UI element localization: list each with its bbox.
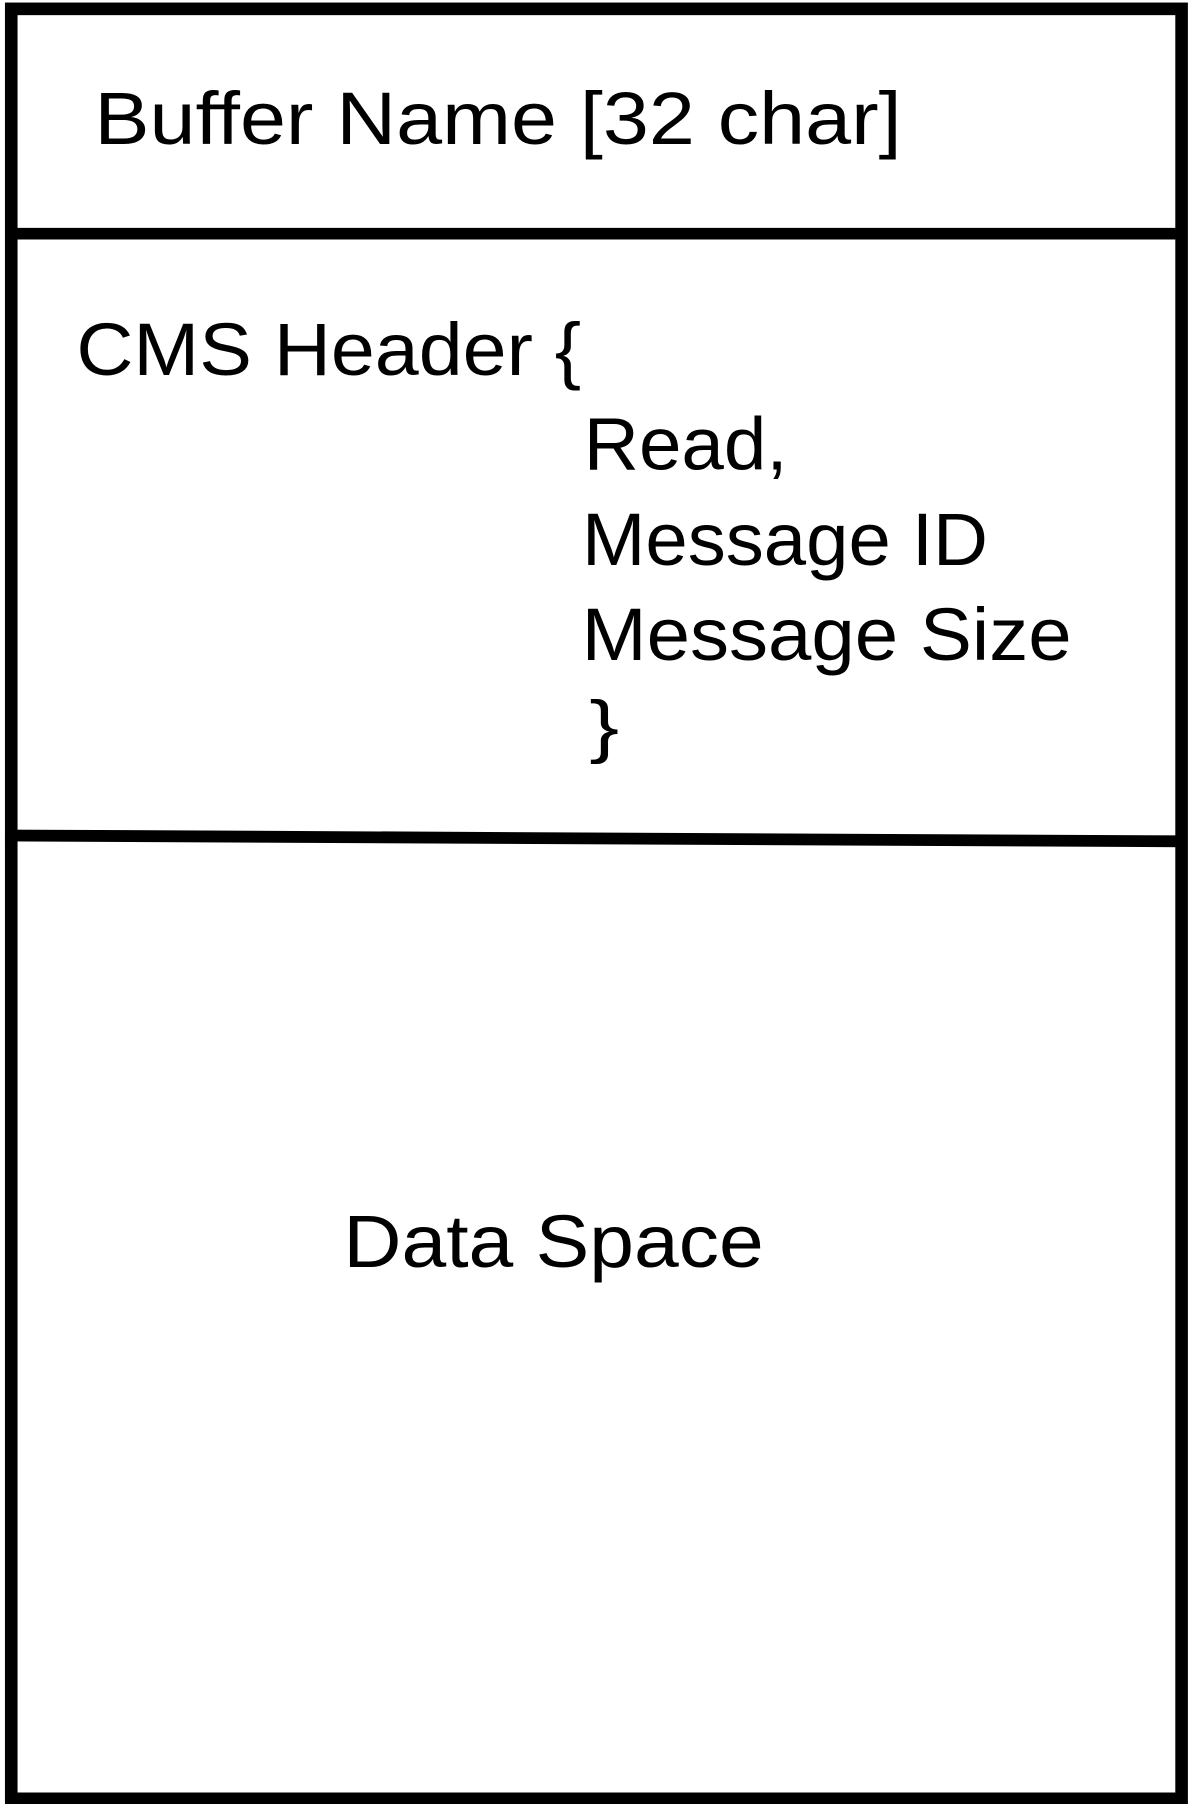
svg-text:Read,: Read, [584, 403, 788, 486]
svg-text:}: } [589, 686, 619, 764]
svg-text:Message ID: Message ID [582, 498, 988, 581]
svg-text:Message Size: Message Size [582, 593, 1072, 676]
svg-text:CMS Header {: CMS Header { [76, 308, 581, 391]
svg-text:Buffer Name [32 char]: Buffer Name [32 char] [94, 77, 901, 160]
svg-text:Data Space: Data Space [343, 1200, 763, 1283]
